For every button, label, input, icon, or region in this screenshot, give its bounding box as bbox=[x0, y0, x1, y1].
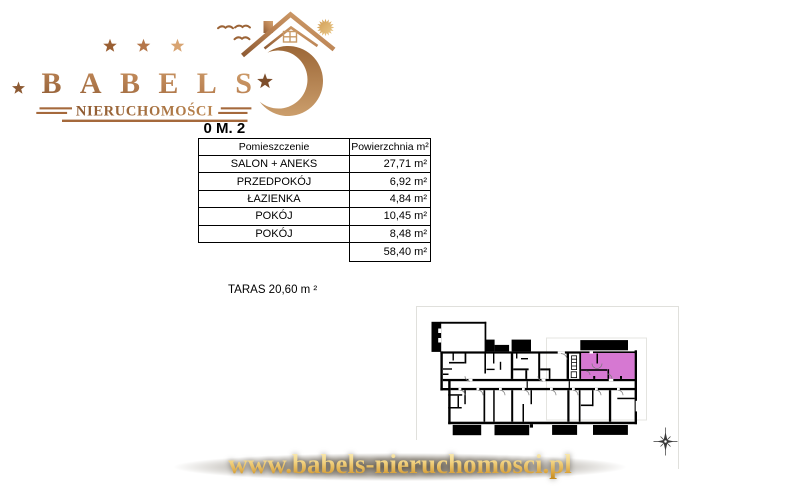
svg-text:BABELS: BABELS bbox=[42, 67, 271, 100]
svg-text:NIERUCHOMOŚCI: NIERUCHOMOŚCI bbox=[76, 103, 213, 120]
